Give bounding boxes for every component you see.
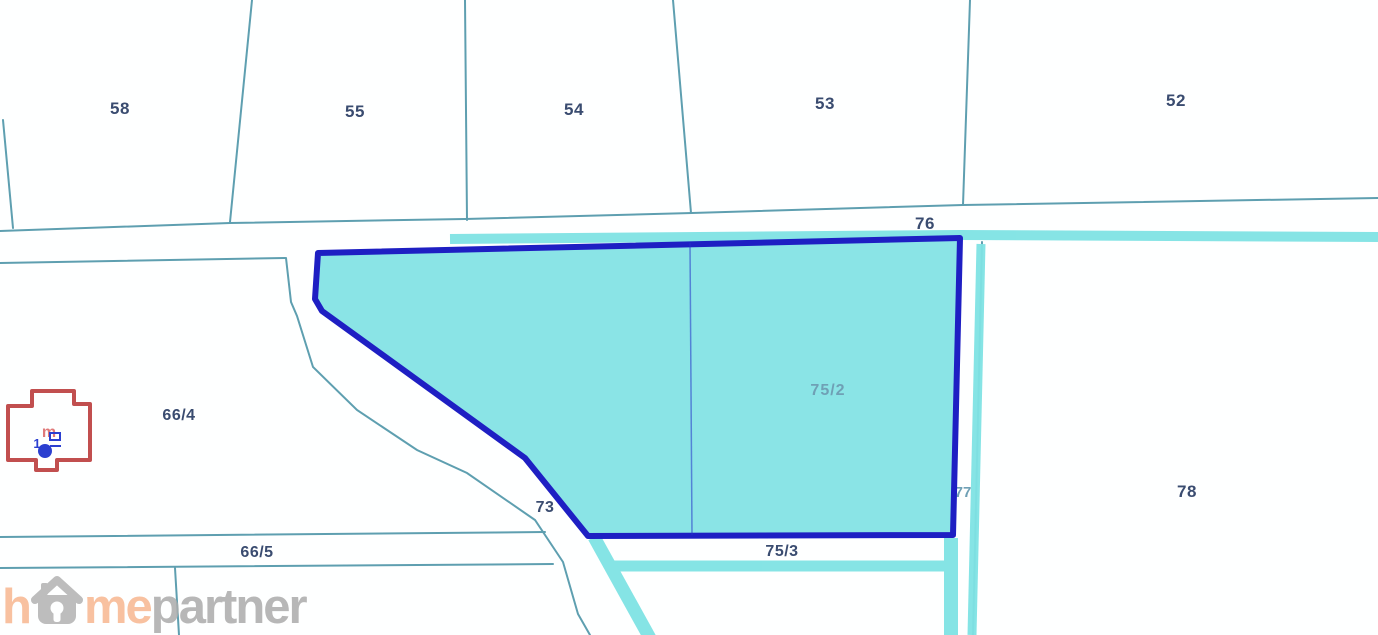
selected-parcel-fill[interactable] <box>315 238 960 536</box>
parcel-label-55: 55 <box>345 102 365 122</box>
parcel-label-54: 54 <box>564 100 584 120</box>
parcel-label-66-4: 66/4 <box>162 407 195 425</box>
parcel-label-75-2: 75/2 <box>810 382 845 399</box>
parcel-label-53: 53 <box>815 94 835 114</box>
parcel-label-73: 73 <box>536 499 555 517</box>
parcel-label-58: 58 <box>110 99 130 119</box>
parcel-label-77: 77 <box>955 484 972 501</box>
parcel-label-78: 78 <box>1177 482 1197 502</box>
road-highlight-right-vertical <box>972 244 981 635</box>
parcel-label-66-5: 66/5 <box>240 544 273 562</box>
road-highlight-diagonal <box>594 537 651 635</box>
building-symbol: m 1 <box>33 424 61 458</box>
cadastral-map[interactable]: 75/2 77 m 1 58 55 54 53 52 76 66/4 73 66… <box>0 0 1378 635</box>
building-symbol-dot-icon <box>38 444 52 458</box>
road-label-76: 76 <box>915 214 935 234</box>
parcel-label-75-3: 75/3 <box>765 543 798 561</box>
parcel-label-52: 52 <box>1166 91 1186 111</box>
